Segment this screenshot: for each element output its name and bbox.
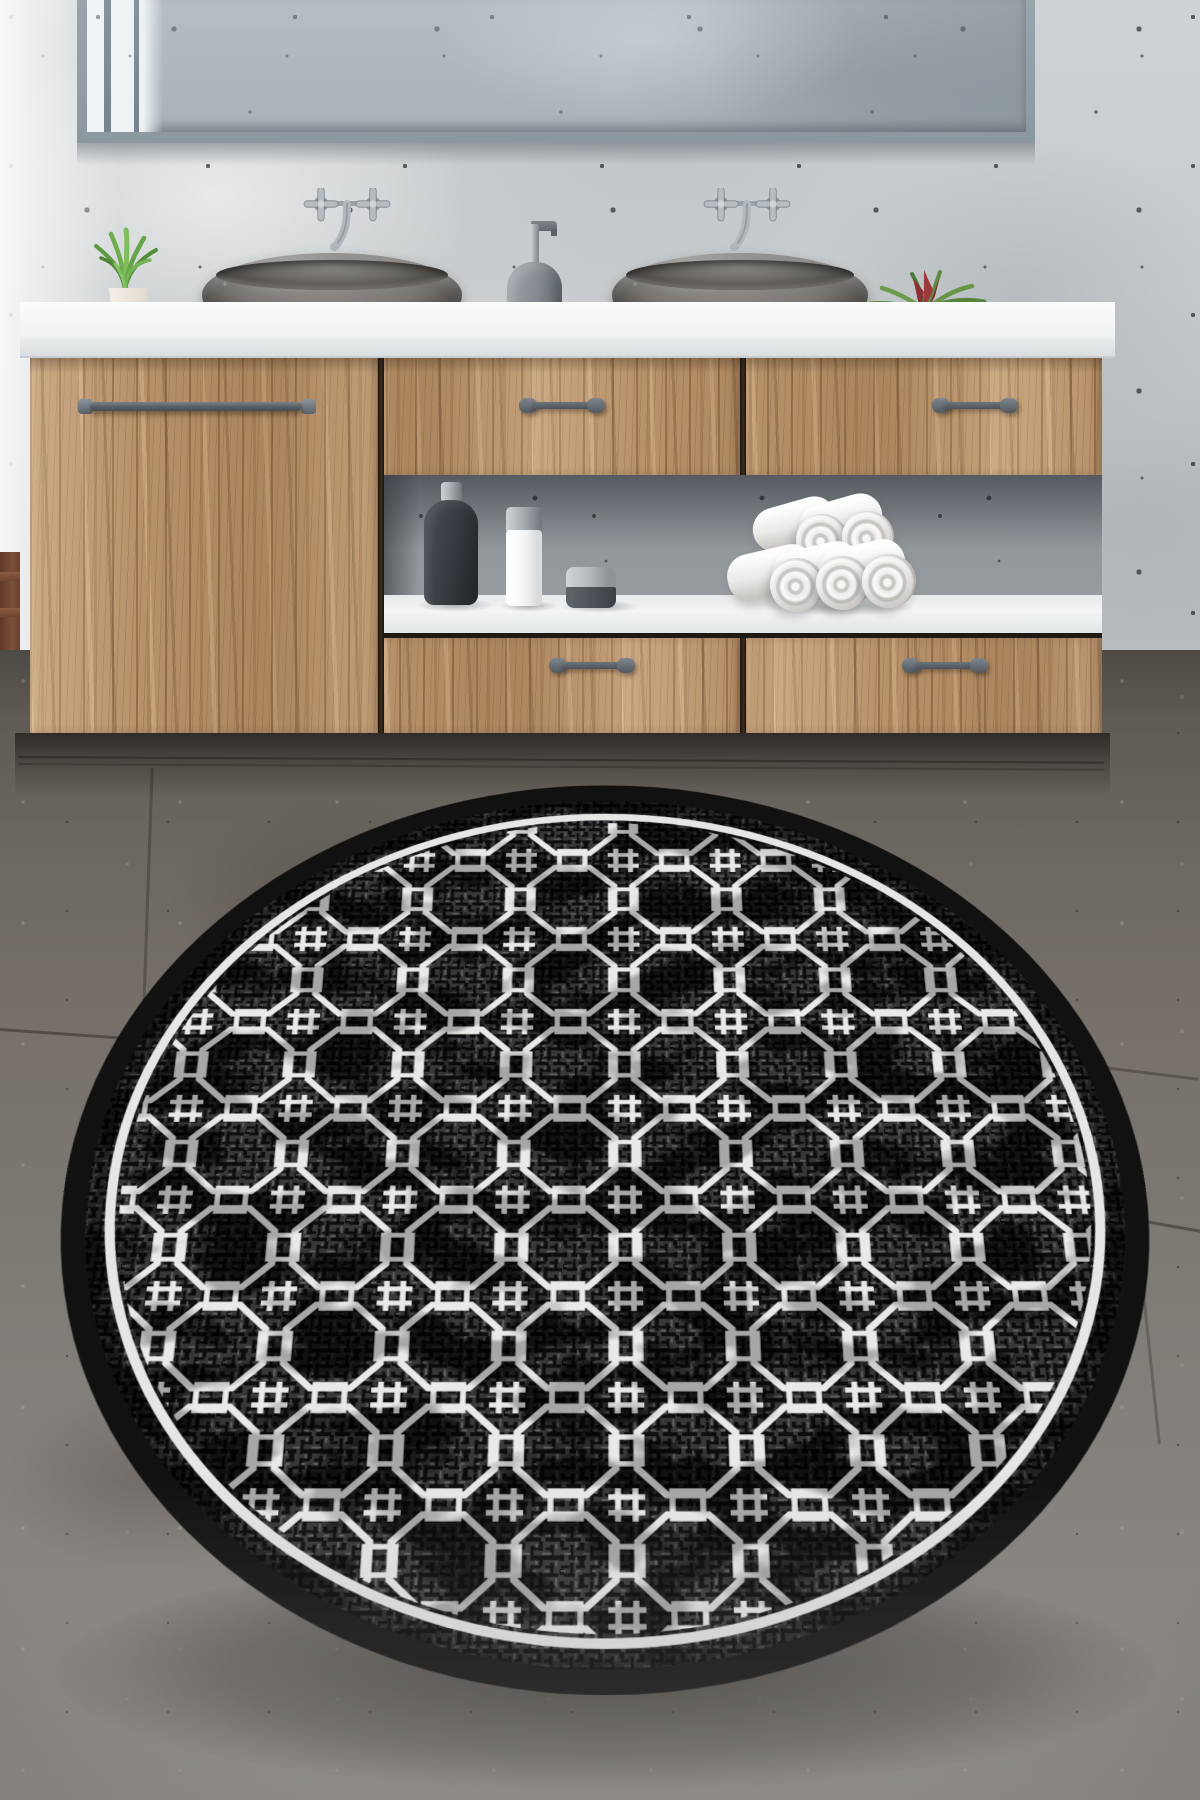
countertop-front-edge xyxy=(20,338,1115,358)
chair-rail xyxy=(0,608,20,617)
faucet-cross-handle-icon xyxy=(704,188,738,221)
drawer-handle xyxy=(519,398,605,413)
grass-plant-leaves xyxy=(88,226,162,292)
lower-right-drawer xyxy=(746,638,1102,733)
countertop-surface xyxy=(20,302,1115,338)
sink-opening xyxy=(216,260,448,290)
faucet-cross-handle-icon xyxy=(356,188,390,221)
cabinet-left-door xyxy=(30,347,378,733)
round-rug xyxy=(0,785,1200,1695)
mirror-speckles xyxy=(87,0,1026,132)
lower-middle-drawer xyxy=(384,638,740,733)
drawer-handle xyxy=(932,398,1018,413)
mirror-shadow xyxy=(77,143,1035,165)
steel-lid-jar xyxy=(566,587,616,608)
shelf-board-front xyxy=(384,612,1102,633)
sink-opening xyxy=(626,260,854,290)
handle-cap xyxy=(301,399,316,414)
rug-graphic xyxy=(0,785,1200,1695)
chair-rail xyxy=(0,572,20,581)
mirror-glass xyxy=(87,0,1026,132)
wood-vanity-cabinet xyxy=(30,347,1102,733)
chair-fragment xyxy=(0,552,20,650)
door-handle xyxy=(90,402,302,411)
tube-cap xyxy=(506,507,542,532)
mirror xyxy=(77,0,1035,143)
bathroom-photo xyxy=(0,0,1200,1800)
faucet-cross-handle-icon xyxy=(304,188,338,221)
dispenser-pump-stem xyxy=(531,224,539,266)
bottle-cap xyxy=(441,482,462,502)
towel-roll-end xyxy=(862,554,916,608)
drawer-handle xyxy=(549,658,635,673)
white-bottle xyxy=(506,530,542,606)
dark-soap-bottle xyxy=(424,500,478,605)
faucet-cross-handle-icon xyxy=(756,188,790,221)
jar-lid xyxy=(566,567,616,587)
drawer-handle xyxy=(902,658,988,673)
